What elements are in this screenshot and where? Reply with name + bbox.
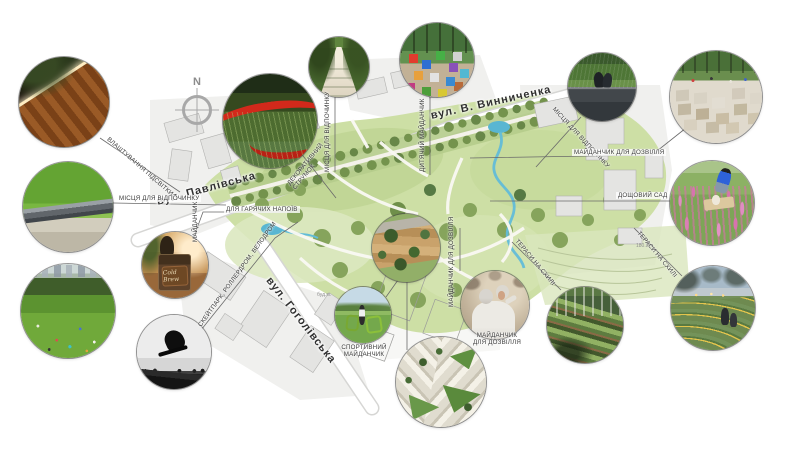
callout-sports: СПОРТИВНИЙ МАЙДАНЧИК [333, 344, 395, 358]
photo-stone-blocks-plaza [670, 51, 762, 143]
callout-leisure-center: МАЙДАНЧИК ДЛЯ ДОЗВІЛЛЯ [448, 217, 455, 307]
seated-person-2 [730, 313, 737, 327]
coffee-cart-sign: Cold Brew [162, 266, 189, 287]
grass-shadow-layer [19, 57, 76, 98]
crowd-blur-layer [461, 271, 529, 302]
photo-colorful-cubes-playground [400, 23, 474, 97]
photo-aerial-paving-pattern [396, 337, 486, 427]
lit-terrace-curves [671, 294, 755, 350]
photo-tree-alley-benches [309, 37, 369, 97]
photo-evening-amphitheater [671, 266, 755, 350]
seated-person-1 [721, 308, 729, 325]
gym-equipment-right [365, 315, 384, 335]
dancer-head-left [479, 289, 493, 305]
photo-aerial-wood-deck [372, 214, 440, 282]
photo-dancing-couple [461, 271, 529, 339]
callout-rest-alley: МІСЦЯ ДЛЯ ВІДПОЧИНКУ [324, 92, 331, 172]
callout-sports-line1: СПОРТИВНИЙ [333, 344, 395, 351]
foreground-plants [547, 336, 594, 363]
long-bench-shape [23, 198, 113, 224]
people-dots-layer [21, 311, 115, 358]
tree-canopy-left [309, 37, 335, 83]
tree-crowns-layer [372, 214, 440, 282]
photo-wood-bench-lighting [19, 57, 109, 147]
photo-lawn-bench [23, 162, 113, 252]
child-figure [712, 195, 720, 205]
callout-leisure-dance-line2: ДЛЯ ДОЗВІЛЛЯ [466, 339, 528, 346]
ramp-shape [137, 364, 211, 389]
photo-red-garden-path [223, 74, 317, 168]
photo-rain-garden-flowers [670, 161, 754, 245]
callout-rain-garden: ДОЩОВИЙ САД [616, 192, 669, 199]
callout-hot-drinks-vertical: МАЙДАНЧИК [192, 202, 199, 243]
people-dots-layer [670, 71, 762, 89]
granite-blocks [676, 89, 689, 101]
tree-trunks-layer [670, 51, 762, 73]
photo-stone-wall-seating [568, 53, 636, 121]
photo-outdoor-gym [335, 287, 391, 343]
colorful-cubes [409, 54, 418, 63]
callout-leisure-dance: МАЙДАНЧИК ДЛЯ ДОЗВІЛЛЯ [466, 332, 528, 346]
callout-sports-line2: МАЙДАНЧИК [333, 351, 395, 358]
photo-terraced-planting [547, 287, 623, 363]
callout-leisure-dance-line1: МАЙДАНЧИК [466, 332, 528, 339]
dancer-face [498, 291, 505, 299]
birch-trunks-layer [547, 287, 623, 316]
callout-leisure-top-right: МАЙДАНЧИК ДЛЯ ДОЗВІЛЛЯ [572, 149, 666, 156]
tree-trunks-layer [400, 23, 474, 53]
grass-spikes-layer [223, 112, 317, 168]
tree-dots-layer [396, 337, 486, 427]
compass-north-label: N [193, 76, 201, 88]
tree-canopy-right [343, 37, 369, 83]
masterplan-board: N Cold Brew [0, 0, 800, 460]
skyline-layer [30, 265, 105, 277]
wall-edge-highlight [568, 87, 636, 89]
exerciser-figure [359, 305, 365, 325]
callout-hot-drinks-horizontal: ДЛЯ ГАРЯЧИХ НАПОЇВ [224, 206, 300, 213]
callout-rest-left: МІСЦЯ ДЛЯ ВІДПОЧИНКУ [117, 195, 201, 202]
gym-equipment-left [345, 314, 360, 332]
map-note-building: буд.м. [317, 292, 331, 298]
callout-kids-playground: ДИТЯЧИЙ МАЙДАНЧИК [419, 98, 426, 172]
photo-park-lawn-people [21, 264, 115, 358]
